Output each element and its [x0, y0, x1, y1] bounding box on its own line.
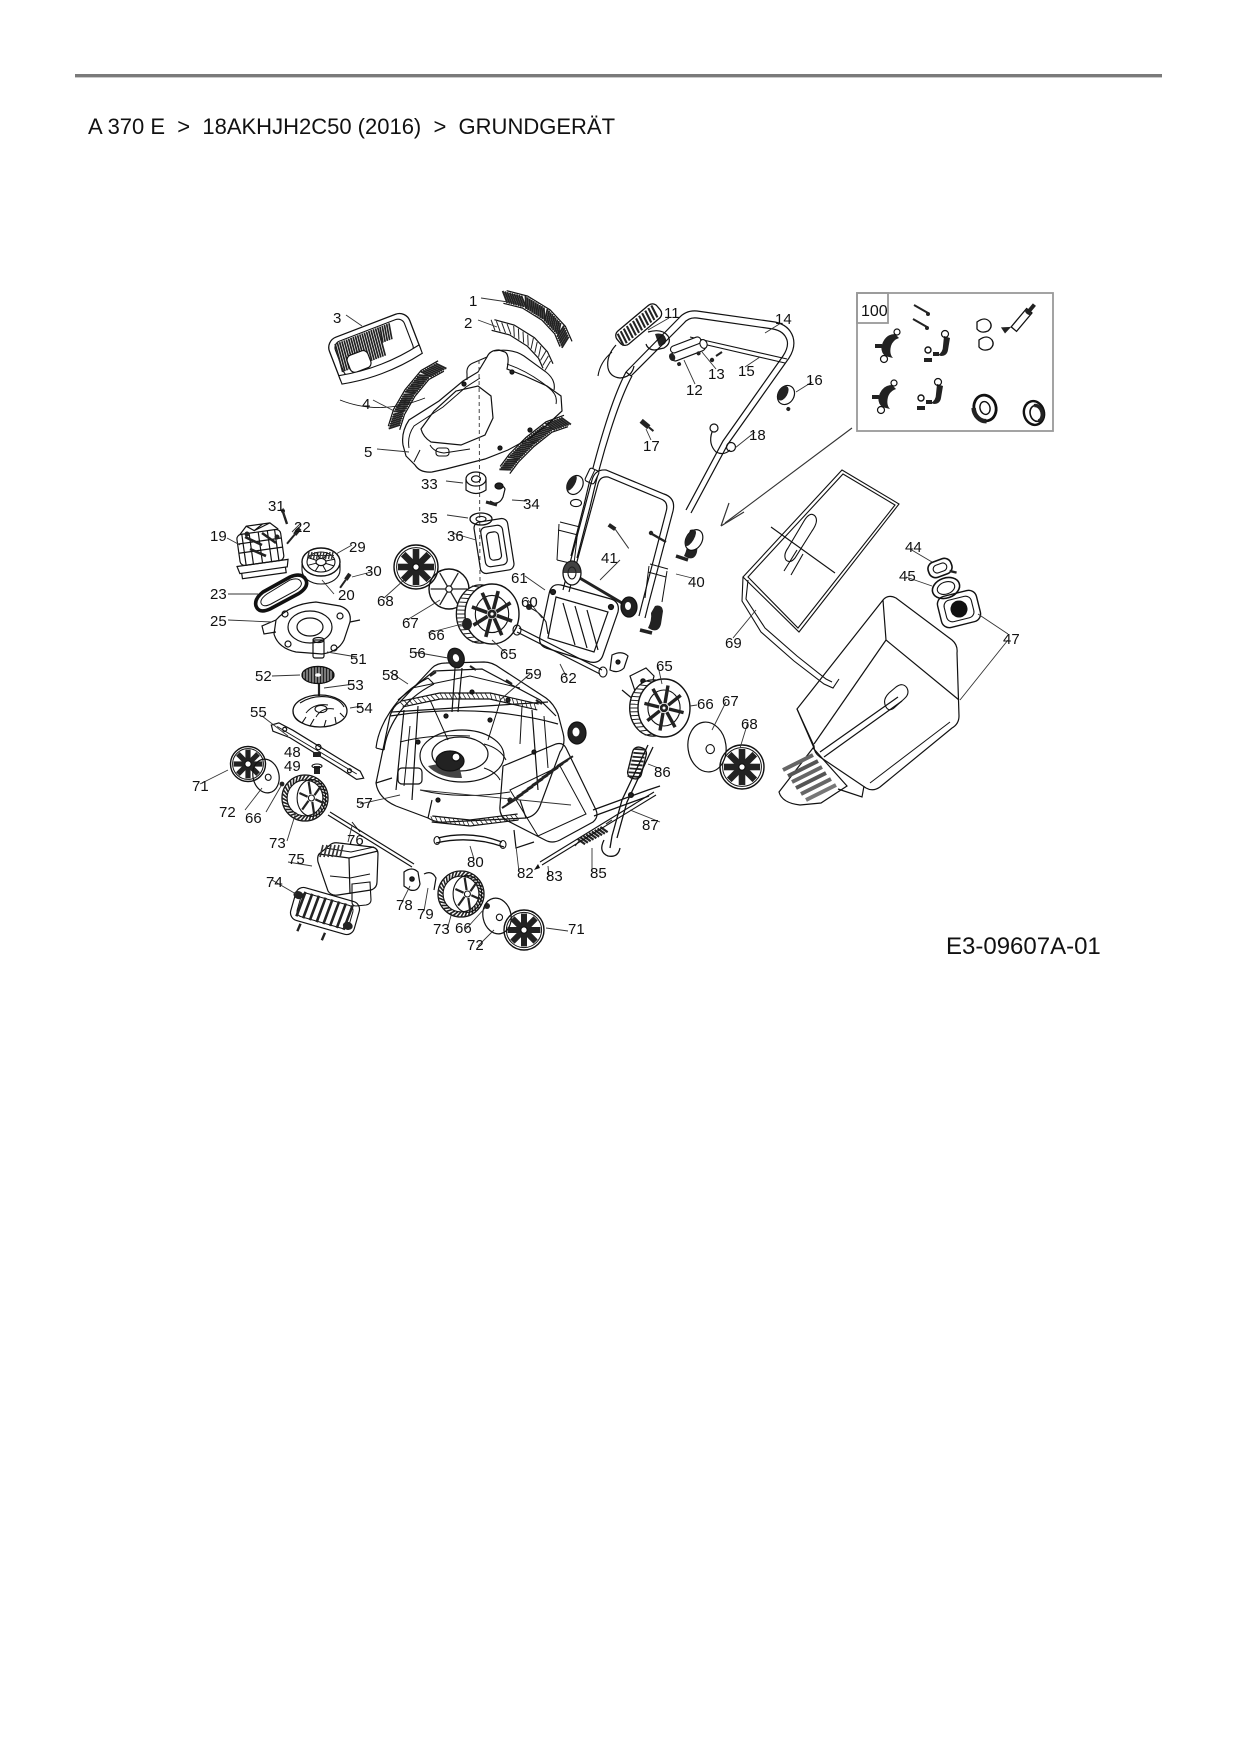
svg-text:71: 71	[568, 921, 585, 938]
svg-text:45: 45	[899, 568, 916, 585]
svg-text:25: 25	[210, 613, 227, 630]
svg-text:52: 52	[255, 668, 272, 685]
svg-text:44: 44	[905, 539, 922, 556]
svg-text:66: 66	[455, 920, 472, 937]
svg-text:53: 53	[347, 677, 364, 694]
svg-text:31: 31	[268, 498, 285, 515]
svg-text:72: 72	[467, 937, 484, 954]
svg-text:47: 47	[1003, 631, 1020, 648]
svg-text:65: 65	[656, 658, 673, 675]
svg-text:4: 4	[362, 396, 370, 413]
svg-text:36: 36	[447, 528, 464, 545]
svg-text:55: 55	[250, 704, 267, 721]
svg-text:A 370 E > 18AKHJH2C50 (2016): A 370 E > 18AKHJH2C50 (2016) > GRUNDGERÄ…	[88, 114, 615, 139]
svg-text:57: 57	[356, 795, 373, 812]
svg-text:66: 66	[428, 627, 445, 644]
svg-text:17: 17	[643, 438, 660, 455]
svg-text:71: 71	[192, 778, 209, 795]
svg-text:73: 73	[269, 835, 286, 852]
svg-text:2: 2	[464, 315, 472, 332]
svg-text:15: 15	[738, 363, 755, 380]
svg-text:67: 67	[402, 615, 419, 632]
svg-text:68: 68	[741, 716, 758, 733]
svg-text:80: 80	[467, 854, 484, 871]
svg-text:12: 12	[686, 382, 703, 399]
svg-text:35: 35	[421, 510, 438, 527]
svg-text:73: 73	[433, 921, 450, 938]
svg-text:29: 29	[349, 539, 366, 556]
svg-text:65: 65	[500, 646, 517, 663]
svg-text:54: 54	[356, 700, 373, 717]
svg-text:62: 62	[560, 670, 577, 687]
svg-text:69: 69	[725, 635, 742, 652]
svg-text:76: 76	[347, 832, 364, 849]
svg-text:59: 59	[525, 666, 542, 683]
svg-text:E3-09607A-01: E3-09607A-01	[946, 933, 1101, 960]
svg-text:86: 86	[654, 764, 671, 781]
svg-text:1: 1	[469, 293, 477, 310]
svg-text:3: 3	[333, 310, 341, 327]
svg-text:18: 18	[749, 427, 766, 444]
svg-text:22: 22	[294, 519, 311, 536]
svg-text:85: 85	[590, 865, 607, 882]
svg-text:61: 61	[511, 570, 528, 587]
svg-text:11: 11	[664, 305, 680, 322]
svg-text:20: 20	[338, 587, 355, 604]
svg-text:19: 19	[210, 528, 227, 545]
svg-text:16: 16	[806, 372, 823, 389]
svg-text:72: 72	[219, 804, 236, 821]
svg-text:83: 83	[546, 868, 563, 885]
svg-text:66: 66	[697, 696, 714, 713]
svg-text:49: 49	[284, 758, 301, 775]
svg-text:66: 66	[245, 810, 262, 827]
svg-text:56: 56	[409, 645, 426, 662]
svg-text:79: 79	[417, 906, 434, 923]
svg-text:67: 67	[722, 693, 739, 710]
svg-text:14: 14	[775, 311, 792, 328]
svg-text:41: 41	[601, 550, 618, 567]
svg-text:33: 33	[421, 476, 438, 493]
svg-text:51: 51	[350, 651, 367, 668]
svg-text:30: 30	[365, 563, 382, 580]
svg-text:100: 100	[861, 303, 888, 320]
svg-text:23: 23	[210, 586, 227, 603]
svg-text:78: 78	[396, 897, 413, 914]
svg-text:58: 58	[382, 667, 399, 684]
svg-text:75: 75	[288, 851, 305, 868]
svg-text:40: 40	[688, 574, 705, 591]
svg-text:82: 82	[517, 865, 534, 882]
svg-text:68: 68	[377, 593, 394, 610]
svg-text:34: 34	[523, 496, 540, 513]
svg-text:13: 13	[708, 366, 725, 383]
svg-text:87: 87	[642, 817, 659, 834]
svg-text:5: 5	[364, 444, 372, 461]
svg-text:74: 74	[266, 874, 283, 891]
svg-text:60: 60	[521, 594, 538, 611]
